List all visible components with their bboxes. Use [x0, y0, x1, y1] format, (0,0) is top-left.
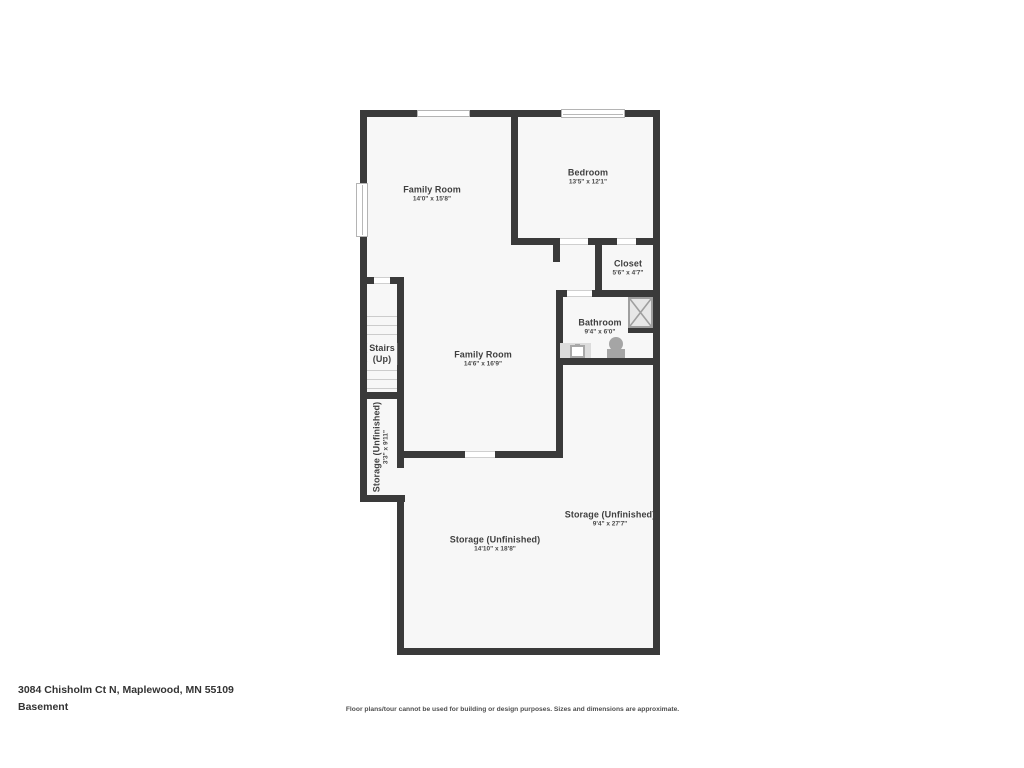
room-name: Family Room — [454, 350, 512, 361]
door-opening-closet — [617, 238, 636, 245]
wall-bathroom-storage-divider — [556, 297, 563, 458]
window-frame-line — [563, 114, 623, 115]
wall-stairs-bottom — [367, 392, 404, 399]
shower-symbol — [628, 297, 653, 328]
shower-x-icon — [630, 299, 651, 326]
label-family-room-top: Family Room 14'0" x 15'8" — [403, 185, 461, 204]
room-dimensions: 14'6" x 16'9" — [454, 361, 512, 369]
door-opening-stairs — [374, 277, 390, 284]
wall-bottom — [397, 648, 660, 655]
wall-bathroom-bottom — [556, 358, 660, 365]
label-bedroom: Bedroom 13'5" x 12'1" — [568, 168, 608, 187]
wall-bedroom-bottom-b — [588, 238, 617, 245]
stair-tread — [367, 316, 397, 317]
wall-bedroom-stub — [553, 245, 560, 262]
door-opening-bathroom — [567, 290, 592, 297]
wall-bedroom-bottom-a — [511, 238, 560, 245]
room-name: Storage (Unfinished) — [565, 510, 656, 521]
wall-bedroom-left — [511, 110, 518, 245]
wall-stairs-top-a — [367, 277, 374, 284]
window-left-wall — [356, 183, 368, 237]
label-family-room-center: Family Room 14'6" x 16'9" — [454, 350, 512, 369]
wall-left-upper — [360, 117, 367, 183]
floorplan-fill-upper — [360, 110, 660, 500]
window-frame-line — [362, 185, 363, 235]
room-name: Bathroom — [578, 318, 621, 329]
wall-bathroom-top-a — [556, 290, 567, 297]
property-address: 3084 Chisholm Ct N, Maplewood, MN 55109 — [18, 684, 234, 696]
stair-tread — [367, 388, 397, 389]
room-name: Storage (Unfinished) — [372, 402, 383, 493]
sink-faucet-symbol — [575, 344, 580, 347]
disclaimer-text: Floor plans/tour cannot be used for buil… — [340, 706, 685, 713]
room-name: Storage (Unfinished) — [450, 535, 541, 546]
wall-stairs-right — [397, 284, 404, 468]
toilet-tank-symbol — [607, 349, 625, 358]
room-name: Family Room — [403, 185, 461, 196]
stair-tread — [367, 379, 397, 380]
wall-familyroom-bottom-b — [495, 451, 556, 458]
wall-stairs-top-b — [390, 277, 404, 284]
wall-left-lower — [360, 237, 367, 497]
room-name: Bedroom — [568, 168, 608, 179]
room-name: Closet — [613, 259, 644, 270]
window-top-right — [561, 109, 625, 118]
wall-bedroom-bottom-c — [636, 238, 660, 245]
label-stairs: Stairs (Up) — [367, 343, 397, 365]
label-storage-right: Storage (Unfinished) 9'4" x 27'7" — [565, 510, 656, 529]
label-storage-left: Storage (Unfinished) 3'3" x 9'11" — [372, 402, 391, 493]
room-dimensions: 9'4" x 6'0" — [578, 329, 621, 337]
wall-lowerleft-vertical — [397, 495, 404, 655]
room-dimensions: 14'0" x 15'8" — [403, 196, 461, 204]
room-dimensions: 13'5" x 12'1" — [568, 179, 608, 187]
room-dimensions: 3'3" x 9'11" — [383, 402, 391, 493]
label-bathroom: Bathroom 9'4" x 6'0" — [578, 318, 621, 337]
room-dimensions: 14'10" x 18'8" — [450, 546, 541, 554]
stair-tread — [367, 370, 397, 371]
door-opening-bedroom — [560, 238, 588, 245]
wall-familyroom-bottom-a — [404, 451, 465, 458]
wall-top-segment-a — [360, 110, 417, 117]
floorplan-page: Family Room 14'0" x 15'8" Bedroom 13'5" … — [0, 0, 1024, 768]
window-top-left — [417, 110, 470, 117]
wall-right — [653, 110, 660, 655]
room-dimensions: 5'6" x 4'7" — [613, 270, 644, 278]
label-closet: Closet 5'6" x 4'7" — [613, 259, 644, 278]
stairs-line2: (Up) — [367, 354, 397, 365]
door-opening-familyroom — [465, 451, 495, 458]
stair-tread — [367, 334, 397, 335]
floor-name: Basement — [18, 701, 68, 713]
room-dimensions: 9'4" x 27'7" — [565, 521, 656, 529]
stair-tread — [367, 325, 397, 326]
wall-bathroom-top-b — [592, 290, 660, 297]
label-storage-bottom: Storage (Unfinished) 14'10" x 18'8" — [450, 535, 541, 554]
stairs-line1: Stairs — [367, 343, 397, 354]
